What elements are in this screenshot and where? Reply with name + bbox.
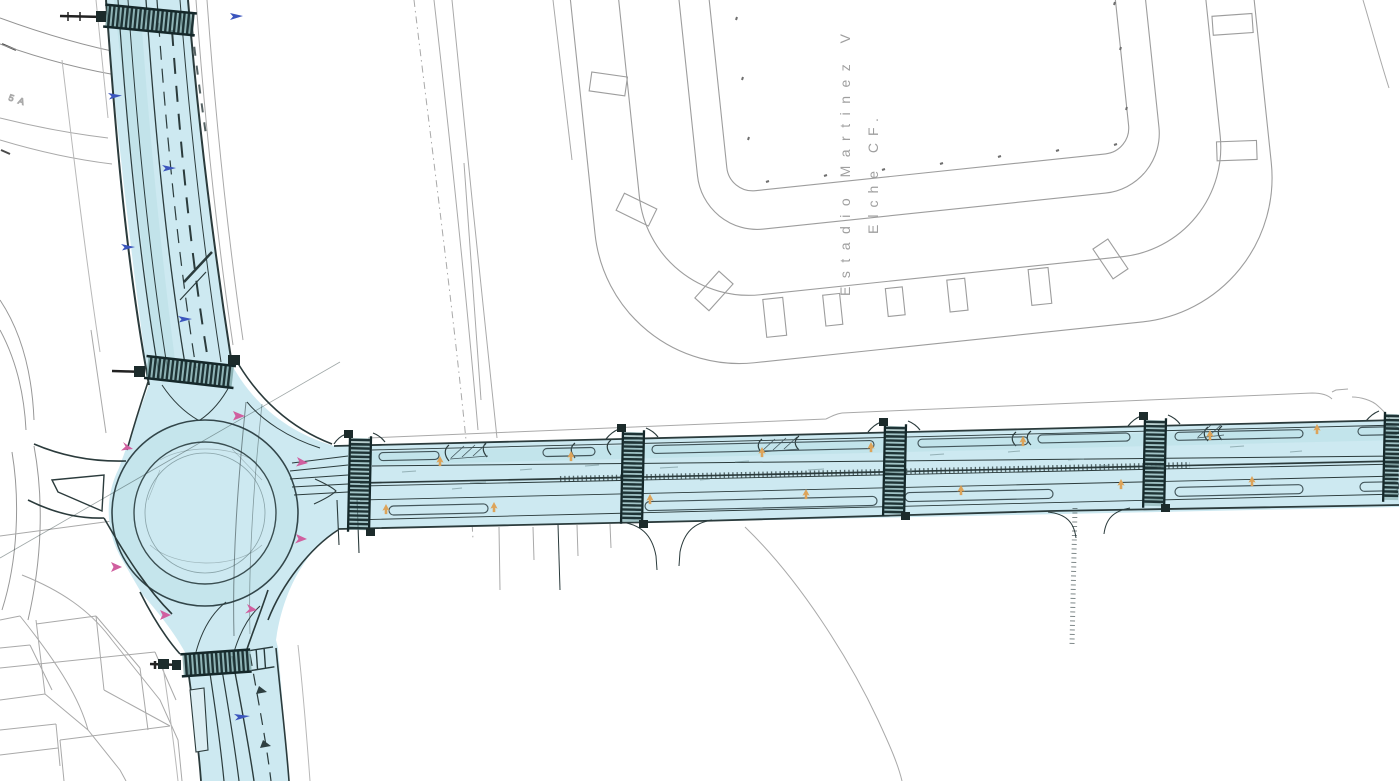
svg-text:Estadio Martinez V: Estadio Martinez V xyxy=(837,26,853,297)
svg-text:Elche CF.: Elche CF. xyxy=(865,111,881,234)
